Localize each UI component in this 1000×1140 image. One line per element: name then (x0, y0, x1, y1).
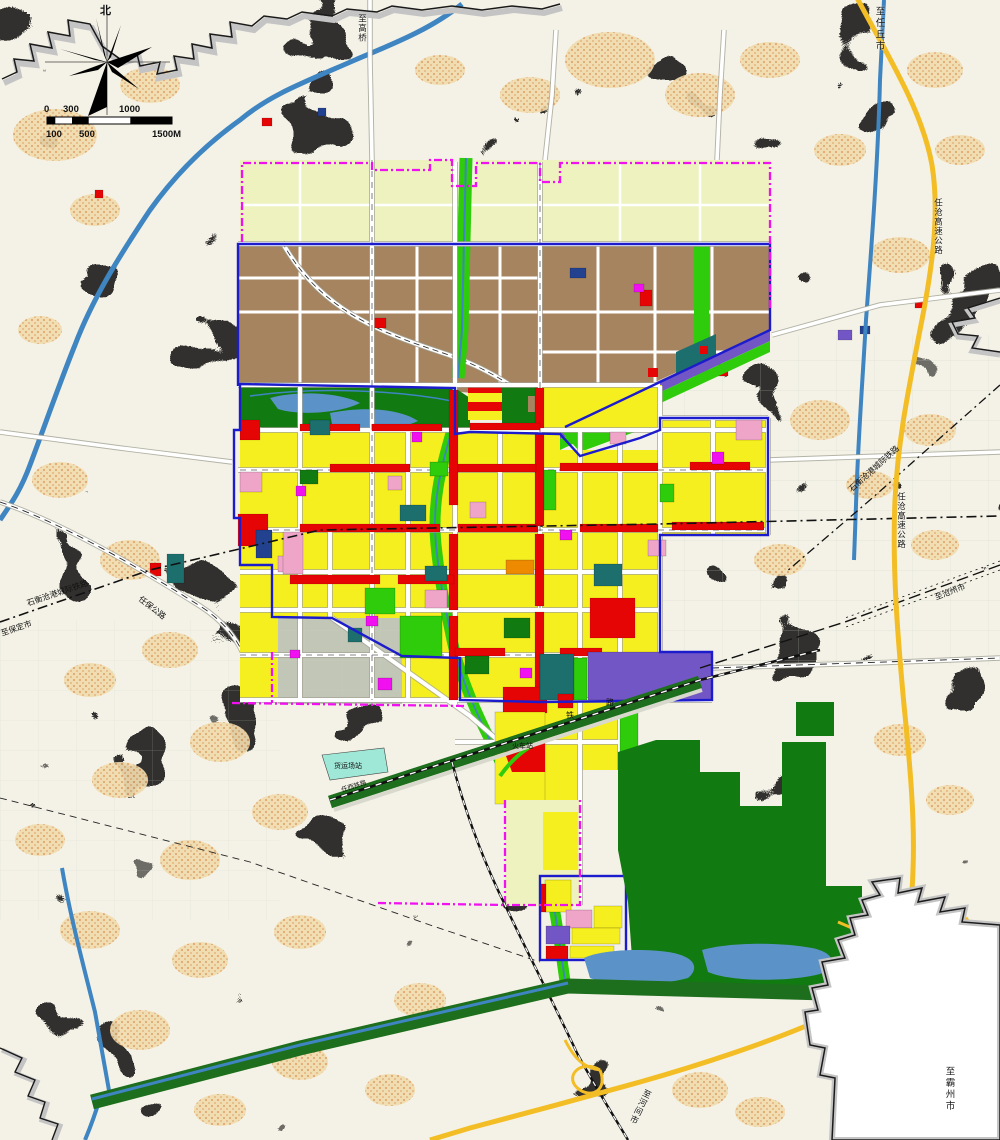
scale-tick: 1500M (152, 129, 181, 140)
scale-tick: 500 (79, 129, 95, 140)
freight-yard-label: 货运场站 (334, 761, 362, 770)
striped-block (468, 384, 502, 420)
expressway-label-south: 任沧高速公路 (897, 492, 906, 549)
expressway-label-north: 任沧高速公路 (934, 198, 943, 255)
station-label: 火车站 (512, 741, 533, 750)
scale-tick: 300 (63, 104, 79, 115)
lake (702, 944, 832, 980)
to-bazhou-label: 至霸州市 (944, 1066, 954, 1112)
lake (584, 950, 694, 984)
north-reserve-zone (240, 160, 770, 244)
map-canvas: 北 0 300 1000 100 500 1500M 石衡沧港城际铁路 至保定市… (0, 0, 1000, 1140)
to-renqiu-label: 至任丘市 (874, 6, 884, 52)
railway-char: 铁 (566, 710, 574, 720)
scale-tick: 0 (44, 104, 49, 115)
planning-map: 北 0 300 1000 100 500 1500M 石衡沧港城际铁路 至保定市… (0, 0, 1000, 1140)
to-gaoqiao-label: 至高桥 (358, 14, 367, 43)
scale-tick: 100 (46, 129, 62, 140)
compass-north-label: 北 (100, 3, 111, 17)
railway-char: 路 (606, 697, 614, 707)
scale-tick: 1000 (119, 104, 140, 115)
